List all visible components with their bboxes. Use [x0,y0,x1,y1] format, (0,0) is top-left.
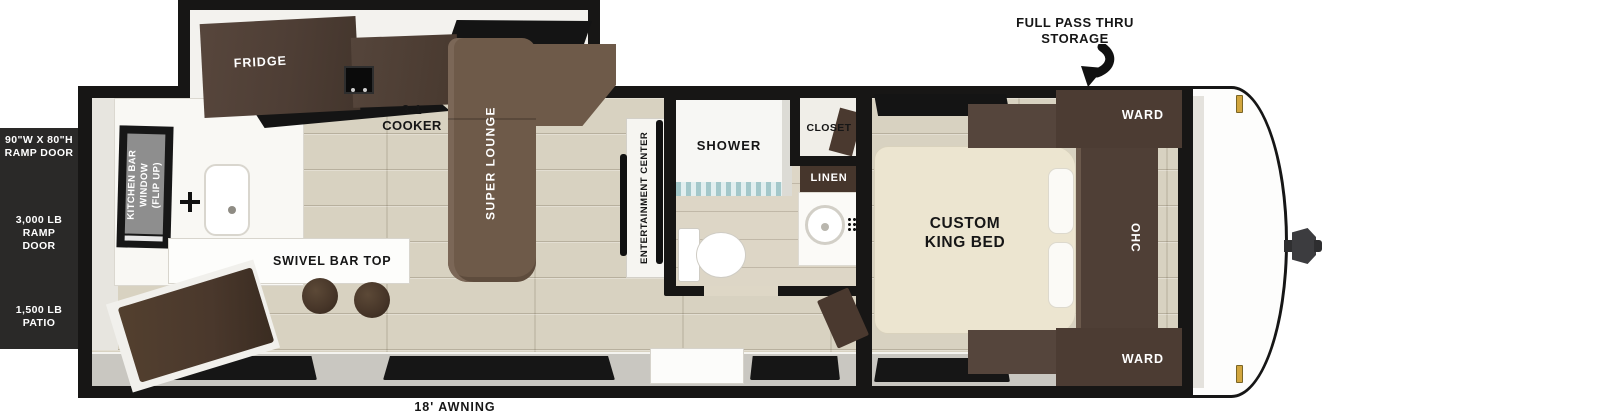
linen-cabinet: LINEN [800,166,858,192]
slideout-wall-top [178,0,600,10]
shower-label: SHOWER [676,138,782,154]
fridge-cabinet: FRIDGE [200,16,361,118]
sink-drain-dot [228,206,236,214]
king-bed: CUSTOM KING BED [874,146,1076,334]
toilet-bowl [696,232,746,278]
spec-patio-capacity: 1,500 LB PATIO [0,304,78,330]
super-lounge-label: SUPER LOUNGE [476,98,506,228]
ohc-cabinet: OHC [1076,138,1158,336]
body-wall-bottom [78,386,1190,398]
ward-rear-label: WARD [1108,352,1178,367]
shower-glass [676,182,782,196]
bar-stool-2 [354,282,390,318]
front-cap-inner-wall [1193,96,1204,388]
spec-ramp-door-capacity: 3,000 LB RAMP DOOR [0,214,78,252]
kitchen-bar-window-label: KITCHEN BAR WINDOW (FLIP UP) [123,131,168,238]
closet: CLOSET [800,98,858,156]
cooktop [344,66,374,94]
kitchen-sink [204,164,250,236]
vanity-faucet-dots [847,217,856,231]
pillow-1 [1048,168,1074,234]
slideout-wall-left [178,0,190,98]
vanity [798,192,858,266]
body-wall-left [78,86,92,398]
kitchen-bar-window: KITCHEN BAR WINDOW (FLIP UP) [116,125,173,248]
tv-strip-left [620,154,627,256]
bar-stool-1 [302,278,338,314]
hitch-coupler [1284,228,1322,264]
fridge-label: FRIDGE [233,54,287,72]
rv-floorplan: 90"W X 80"H RAMP DOOR 3,000 LB RAMP DOOR… [0,0,1600,416]
window-hall [750,356,840,380]
cooker-label: 3-1 COOKER [362,102,462,134]
pass-thru-arrow-icon [1066,44,1116,88]
entertainment-label: ENTERTAINMENT CENTER [630,118,660,278]
hinge-bottom [1236,365,1243,383]
spec-ramp-door-size: 90"W X 80"H RAMP DOOR [0,134,78,160]
super-lounge-chaise: SUPER LOUNGE [448,38,536,282]
linen-label: LINEN [800,172,858,185]
shower: SHOWER [676,100,792,196]
pillow-2 [1048,242,1074,308]
bathroom-door-gap [704,286,778,296]
window-living-2 [383,356,615,380]
faucet-icon [180,192,200,212]
pass-thru-label: FULL PASS THRU STORAGE [1000,15,1150,47]
ward-rear: WARD [1056,328,1182,386]
awning-label: 18' AWNING [385,400,525,415]
front-cap [1190,86,1288,398]
spec-panel: 90"W X 80"H RAMP DOOR 3,000 LB RAMP DOOR… [0,128,78,349]
ward-front: WARD [1056,90,1182,148]
ohc-label: OHC [1123,208,1147,268]
hinge-top [1236,95,1243,113]
closet-label: CLOSET [796,122,862,135]
entry-door [650,348,744,384]
ward-front-label: WARD [1108,108,1178,123]
king-bed-label: CUSTOM KING BED [885,215,1045,253]
swivel-bar-label: SWIVEL BAR TOP [273,254,391,269]
bedroom-divider-wall [856,88,872,398]
